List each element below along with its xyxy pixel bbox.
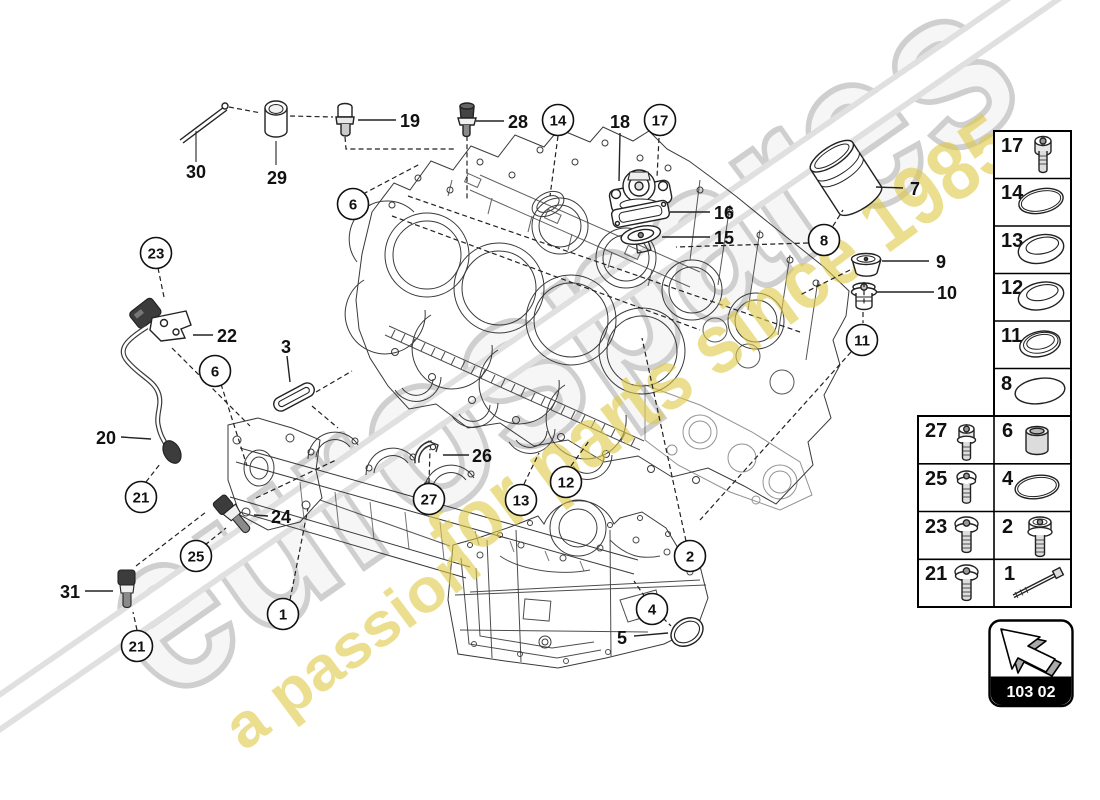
svg-text:6: 6 [349, 197, 357, 214]
svg-text:23: 23 [925, 516, 947, 538]
svg-text:27: 27 [421, 492, 438, 509]
svg-text:16: 16 [714, 203, 734, 223]
svg-text:10: 10 [937, 283, 957, 303]
svg-text:4: 4 [1002, 468, 1014, 490]
svg-text:8: 8 [820, 233, 828, 250]
svg-text:2: 2 [1002, 516, 1013, 538]
svg-text:18: 18 [610, 112, 630, 132]
svg-text:1: 1 [1004, 563, 1015, 585]
svg-text:15: 15 [714, 228, 734, 248]
svg-text:11: 11 [1001, 325, 1022, 347]
svg-text:13: 13 [513, 493, 530, 510]
svg-text:3: 3 [281, 337, 291, 357]
svg-text:22: 22 [217, 326, 237, 346]
svg-text:20: 20 [96, 428, 116, 448]
svg-text:12: 12 [558, 475, 575, 492]
svg-text:24: 24 [271, 507, 291, 527]
svg-text:8: 8 [1001, 373, 1012, 395]
svg-text:27: 27 [925, 420, 947, 442]
svg-text:6: 6 [1002, 420, 1013, 442]
svg-text:5: 5 [617, 628, 627, 648]
svg-text:25: 25 [188, 549, 205, 566]
svg-text:21: 21 [925, 563, 947, 585]
svg-text:4: 4 [648, 602, 657, 619]
svg-text:31: 31 [60, 582, 80, 602]
svg-text:21: 21 [133, 490, 150, 507]
svg-text:14: 14 [550, 113, 567, 130]
svg-text:17: 17 [652, 113, 669, 130]
svg-text:19: 19 [400, 111, 420, 131]
svg-text:25: 25 [925, 468, 947, 490]
svg-text:30: 30 [186, 162, 206, 182]
svg-text:103 02: 103 02 [1007, 684, 1056, 701]
svg-text:23: 23 [148, 246, 165, 263]
svg-text:29: 29 [267, 168, 287, 188]
svg-text:7: 7 [910, 179, 920, 199]
svg-text:28: 28 [508, 112, 528, 132]
svg-text:1: 1 [279, 607, 287, 624]
svg-text:11: 11 [854, 333, 870, 350]
svg-text:26: 26 [472, 446, 492, 466]
svg-text:6: 6 [211, 364, 219, 381]
svg-text:21: 21 [129, 639, 146, 656]
svg-text:9: 9 [936, 252, 946, 272]
svg-text:17: 17 [1001, 135, 1023, 157]
svg-text:2: 2 [686, 549, 694, 566]
